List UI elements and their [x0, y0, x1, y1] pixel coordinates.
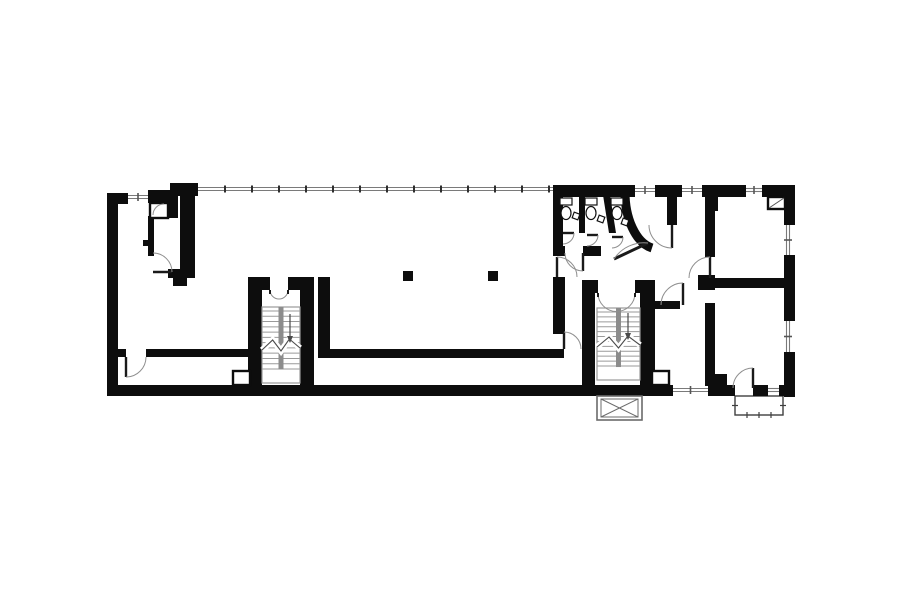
- door-swing-arc: [587, 235, 598, 246]
- door-swing-arc: [557, 257, 577, 277]
- wall-segment: [655, 185, 682, 197]
- dispenser: [621, 218, 629, 226]
- dispenser: [597, 215, 605, 223]
- wall-segment: [148, 246, 154, 256]
- door-swing-arc: [126, 357, 146, 377]
- wall-segment: [553, 246, 565, 256]
- door-swing-arc: [689, 257, 710, 278]
- curved-wall: [625, 191, 652, 248]
- wall-segment: [148, 216, 154, 242]
- wall-segment: [318, 277, 330, 358]
- wall-segment: [288, 277, 314, 290]
- wall-segment: [779, 385, 795, 396]
- toilet-bowl: [561, 207, 571, 220]
- wall-segment: [705, 303, 715, 386]
- wall-segment: [553, 277, 565, 334]
- wall-niche: [652, 371, 669, 385]
- wall-segment: [583, 246, 601, 256]
- wall-segment: [143, 240, 154, 246]
- wall-segment: [705, 197, 715, 257]
- door-swing-arc: [563, 233, 574, 244]
- stair-stringer: [279, 307, 284, 369]
- wall-segment: [300, 277, 314, 386]
- dispenser: [572, 212, 580, 220]
- wall-segment: [107, 193, 118, 396]
- wall-segment: [648, 301, 680, 309]
- toilet-tank: [560, 198, 572, 205]
- wall-segment: [582, 280, 598, 293]
- floor-plan-svg: [0, 0, 900, 604]
- wall-segment: [318, 349, 552, 358]
- stair-stringer: [616, 308, 621, 367]
- wall-segment: [713, 374, 727, 385]
- wall-segment: [635, 280, 655, 293]
- wall-segment: [118, 349, 126, 357]
- wall-segment: [168, 196, 178, 218]
- door-swing-arc: [564, 332, 581, 349]
- toilet-tank: [611, 198, 623, 205]
- wall-segment: [248, 277, 270, 290]
- double-door-arc: [270, 290, 279, 299]
- wall-segment: [708, 385, 735, 396]
- wall-segment: [173, 278, 187, 286]
- wall-segment: [582, 280, 595, 386]
- column: [488, 271, 498, 281]
- toilet-tank: [585, 198, 597, 205]
- floor-plan-canvas: [0, 0, 900, 604]
- wall-segment: [146, 349, 250, 357]
- wall-niche: [233, 371, 250, 385]
- wall-segment: [712, 278, 784, 288]
- wall-segment: [550, 349, 564, 358]
- double-door-arc: [279, 290, 288, 299]
- toilet-bowl: [612, 207, 622, 220]
- wall-segment: [180, 190, 195, 278]
- door-swing-arc: [612, 237, 623, 248]
- wall-segment: [667, 197, 677, 225]
- door-swing-arc: [565, 253, 583, 271]
- toilet-bowl: [586, 207, 596, 220]
- wall-segment: [248, 277, 262, 386]
- column: [403, 271, 413, 281]
- wall-segment: [107, 385, 673, 396]
- wall-segment: [784, 255, 795, 321]
- door-swing-arc: [733, 368, 753, 388]
- wall-segment: [702, 185, 746, 197]
- wall-segment: [753, 385, 768, 396]
